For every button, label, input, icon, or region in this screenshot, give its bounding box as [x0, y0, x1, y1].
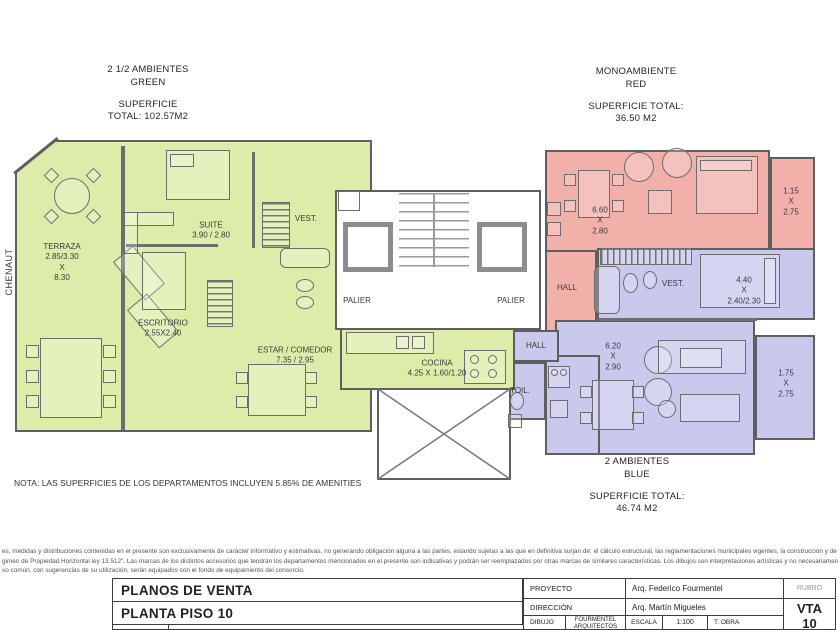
- titleblock-escala-value: 1:100: [662, 615, 708, 630]
- burner-icon: [470, 369, 479, 378]
- toilet-icon: [623, 273, 638, 293]
- sheet-code-line: VTA: [797, 602, 822, 617]
- room-label-hall-red: HALL: [557, 283, 577, 293]
- room-label-blue-living: 6.20X2.90: [605, 341, 621, 372]
- burner-icon: [470, 355, 479, 364]
- burner-icon: [488, 369, 497, 378]
- room-label-terraza: TERRAZA2.85/3.30 X8.30: [43, 242, 80, 284]
- bathtub-icon: [280, 248, 330, 268]
- titleblock-sheet-code: VTA 10: [783, 598, 836, 630]
- room-label-blue-bedroom: 4.40X2.40/2.30: [727, 275, 760, 306]
- titleblock-doc-title: PLANOS DE VENTA: [112, 578, 523, 602]
- chair-icon: [26, 370, 39, 383]
- chair-icon: [564, 200, 576, 212]
- pillow-icon: [170, 154, 194, 167]
- tv-icon: [680, 348, 722, 368]
- blue-table-icon: [592, 380, 634, 430]
- wardrobe-icon: [262, 202, 290, 248]
- room-label-cocina: COCINA4.25 X 1.60/1.20: [408, 359, 467, 380]
- room-label-hall-blue: HALL: [526, 341, 546, 351]
- toilet-icon: [296, 279, 314, 292]
- room-label-palier-right: PALIER: [497, 296, 525, 306]
- estar-table-icon: [248, 364, 306, 416]
- chair-icon: [564, 174, 576, 186]
- room-label-escritorio: ESCRITORIO2.55X2.40: [138, 319, 188, 340]
- chair-icon: [26, 395, 39, 408]
- unit-header-blue: 2 AMBIENTES BLUE SUPERFICIE TOTAL: 46.74…: [589, 456, 684, 516]
- elevator-left: [343, 222, 393, 272]
- sink-icon: [412, 336, 425, 349]
- chair-icon: [580, 386, 592, 398]
- suite-wall-h: [126, 244, 218, 247]
- room-label-vest-blue: VEST.: [662, 279, 684, 289]
- room-label-red-living: 6.60X2.80: [592, 205, 608, 236]
- chair-icon: [103, 370, 116, 383]
- sofa-icon: [124, 212, 138, 254]
- chair-icon: [103, 395, 116, 408]
- stairs-divider: [433, 193, 435, 267]
- sink-icon: [396, 336, 409, 349]
- street-label-chenaut: CHENAUT: [4, 248, 14, 295]
- titleblock-direccion-label: DIRECCIÓN: [523, 598, 626, 616]
- legal-disclaimer: es, medidas y distribuciones contenidas …: [2, 547, 838, 576]
- chair-icon: [612, 200, 624, 212]
- chair-icon: [236, 396, 248, 408]
- kitchenette-icon: [547, 222, 561, 236]
- bidet-icon: [296, 296, 314, 309]
- legal-line: es, medidas y distribuciones contenidas …: [2, 547, 838, 557]
- chair-icon: [26, 345, 39, 358]
- chair-icon: [612, 174, 624, 186]
- titleblock-cell-empty: [112, 624, 169, 630]
- chair-icon: [580, 412, 592, 424]
- titleblock-direccion-value: Arq. Martín Migueles: [625, 598, 784, 616]
- titleblock-proyecto-value: Arq. Federico Fourmentel: [625, 578, 784, 599]
- side-table-icon: [648, 190, 672, 214]
- burner-icon: [551, 369, 558, 376]
- sink-icon: [508, 414, 522, 428]
- desk-icon: [142, 252, 186, 310]
- armchair-icon: [662, 148, 692, 178]
- sheet-code-line: 10: [802, 617, 816, 630]
- titleblock-dibujo-value: FOURMENTEL ARQUITECTOS: [565, 615, 626, 630]
- titleblock-rubro-label: RUBRO: [783, 578, 836, 599]
- sink-icon: [550, 400, 568, 418]
- zone-void-shaft: [377, 388, 511, 480]
- titleblock-sheet-title: PLANTA PISO 10: [112, 601, 523, 625]
- burner-icon: [560, 369, 567, 376]
- unit-header-green: 2 1/2 AMBIENTES GREEN SUPERFICIE TOTAL: …: [107, 64, 188, 124]
- room-label-estar-comedor: ESTAR / COMEDOR7.35 / 2.95: [258, 346, 333, 367]
- closet-icon: [600, 248, 692, 265]
- suite-wall-v: [252, 152, 255, 248]
- burner-icon: [488, 355, 497, 364]
- titleblock-dibujo-label: DIBUJO: [523, 615, 566, 630]
- legal-line: gimen de Propiedad Horizontal ley 13.512…: [2, 557, 838, 567]
- room-label-red-balcony: 1.15X2.75: [783, 186, 799, 217]
- chair-icon: [305, 396, 317, 408]
- pillow-icon: [700, 160, 752, 171]
- amenities-note: NOTA: LAS SUPERFICIES DE LOS DEPARTAMENT…: [14, 478, 361, 488]
- washer-icon: [338, 191, 360, 211]
- dibujo-value-line: FOURMENTEL: [575, 617, 616, 624]
- titleblock-tobra-label: T. OBRA: [707, 615, 784, 630]
- chair-icon: [305, 372, 317, 384]
- room-label-blue-balcony: 1.75X2.75: [778, 368, 794, 399]
- chair-icon: [103, 345, 116, 358]
- room-label-suite: SUITE3.90 / 2.80: [192, 221, 230, 242]
- blue-bath-wall: [597, 318, 757, 321]
- kitchenette-icon: [547, 202, 561, 216]
- room-label-vest-green: VEST.: [295, 214, 317, 224]
- wardrobe-icon: [207, 280, 233, 327]
- dibujo-value-line: ARQUITECTOS: [574, 624, 617, 630]
- chair-icon: [236, 372, 248, 384]
- bathtub-icon: [594, 266, 620, 314]
- floor-plan-sheet: TERRAZA2.85/3.30 X8.30 SUITE3.90 / 2.80 …: [0, 0, 840, 630]
- stove-icon: [464, 350, 506, 384]
- titleblock-cell-empty: [168, 624, 524, 630]
- chair-icon: [632, 412, 644, 424]
- unit-header-red: MONOAMBIENTE RED SUPERFICIE TOTAL: 36.50…: [588, 66, 683, 126]
- elevator-right: [477, 222, 527, 272]
- room-label-palier-left: PALIER: [343, 296, 371, 306]
- titleblock-proyecto-label: PROYECTO: [523, 578, 626, 599]
- terrace-table-icon: [54, 178, 90, 214]
- sofa-icon: [680, 394, 740, 422]
- terrace-dining-table-icon: [40, 338, 102, 418]
- armchair-icon: [624, 152, 654, 182]
- legal-line: so común, con sugerencias de su utilizac…: [2, 566, 838, 576]
- titleblock-escala-label: ESCALA: [625, 615, 663, 630]
- chair-icon: [632, 386, 644, 398]
- bidet-icon: [643, 271, 657, 289]
- terrace-wall: [121, 146, 125, 430]
- pouf-icon: [658, 400, 676, 418]
- pillow-icon: [764, 258, 776, 304]
- room-label-toilette: TOIL.: [510, 386, 530, 396]
